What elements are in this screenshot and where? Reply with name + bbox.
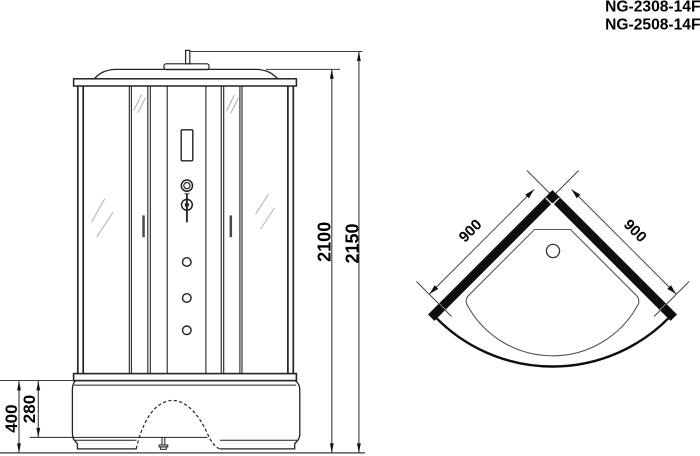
svg-text:2100: 2100 [315,222,335,262]
svg-text:NG-2308-14F: NG-2308-14F [605,0,700,15]
svg-text:280: 280 [20,395,39,423]
svg-text:400: 400 [2,404,21,432]
svg-text:2150: 2150 [342,223,362,263]
svg-text:NG-2508-14F: NG-2508-14F [605,17,700,34]
